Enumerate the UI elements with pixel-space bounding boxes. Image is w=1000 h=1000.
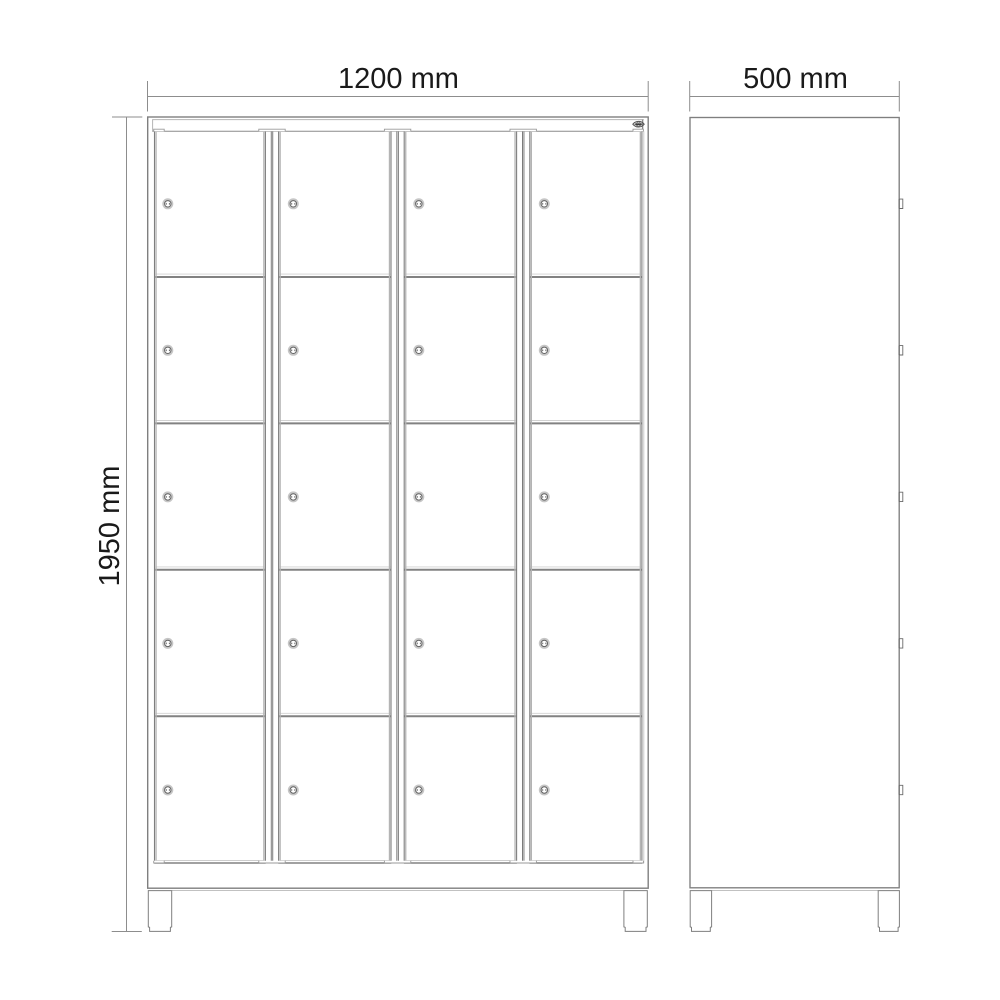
svg-text:1950 mm: 1950 mm [94,466,126,587]
svg-text:500 mm: 500 mm [743,63,848,95]
svg-text:1200 mm: 1200 mm [338,63,459,95]
